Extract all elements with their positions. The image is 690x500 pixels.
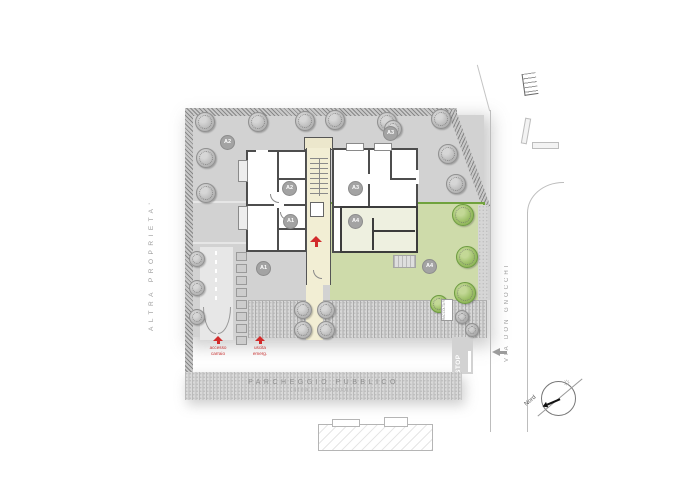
storage-square [236, 300, 247, 309]
wall [368, 150, 370, 174]
tree-icon [431, 109, 451, 129]
unit-a4-plan [340, 206, 418, 253]
tree-icon [295, 111, 315, 131]
lane-marking [532, 142, 559, 149]
adjacent-property-label: ALTRA PROPRIETA' [148, 155, 155, 331]
lane-marking [521, 118, 531, 145]
existing-building-notch [332, 419, 360, 427]
bush-icon [465, 323, 479, 337]
emergency-exit: uscita emerg. [247, 336, 273, 356]
ramp-arc-left [203, 307, 216, 334]
waste-collection-label: RACCOLTA RIFIUTI [442, 300, 447, 320]
terrace-steps [393, 255, 416, 268]
tree-icon [294, 301, 312, 319]
sidewalk-right [478, 205, 488, 300]
door-arc [270, 194, 279, 203]
garden-label-a2: A2 [220, 135, 235, 150]
public-parking-title: PARCHEGGIO PUBBLICO [248, 379, 399, 386]
storage-square [236, 324, 247, 333]
existing-building-outline [318, 424, 433, 451]
emergency-exit-arrow-stem [259, 341, 262, 344]
vehicle-access: accesso carraio [203, 336, 233, 356]
public-parking-subtitle: (area in cessione) [290, 387, 357, 393]
storage-square [236, 288, 247, 297]
tree-icon [195, 112, 215, 132]
storage-square [236, 264, 247, 273]
entrance-arrow-icon [310, 236, 322, 248]
garden-label-a4: A4 [422, 259, 437, 274]
tree-icon [452, 204, 474, 226]
driveway-center-line [215, 251, 217, 303]
vehicle-access-label: accesso carraio [203, 345, 233, 356]
balcony [346, 143, 364, 151]
building-left-wing [246, 150, 307, 252]
wall [374, 230, 415, 232]
window [416, 170, 419, 184]
driveway [200, 247, 233, 340]
tree-icon [189, 280, 205, 296]
wall [284, 204, 305, 206]
wall [248, 204, 274, 206]
tree-icon [438, 144, 458, 164]
stair-core [306, 148, 331, 285]
steps-symbol [522, 72, 539, 96]
stop-road-marking: STOP [455, 349, 462, 374]
elevator [310, 202, 324, 217]
wall [279, 178, 305, 180]
wall [390, 178, 416, 180]
tree-icon [317, 301, 335, 319]
boundary-top [185, 108, 457, 116]
street-left-edge-slant [477, 65, 490, 112]
unit-label-a1: A1 [283, 214, 298, 229]
tree-icon [189, 251, 205, 267]
tree-icon [325, 110, 345, 130]
storage-square [236, 312, 247, 321]
emergency-exit-label: uscita emerg. [247, 345, 273, 356]
storage-square [236, 252, 247, 261]
tree-icon [189, 309, 205, 325]
staircase-center-line [319, 158, 320, 196]
unit-label-a2: A2 [282, 181, 297, 196]
tree-icon [294, 321, 312, 339]
site-plan-canvas: STOP PARCHEGGIO PUBBLICO (area in cessio… [0, 0, 690, 500]
bush-icon [455, 310, 469, 324]
north-label: Nord [524, 395, 538, 408]
unit-label-a3: A3 [348, 181, 363, 196]
tree-icon [456, 246, 478, 268]
garden-divider [193, 242, 246, 244]
window [256, 150, 268, 153]
wall [390, 150, 392, 178]
balcony [238, 206, 248, 230]
stop-line [468, 351, 471, 372]
storage-squares [236, 252, 247, 348]
unit-label-a4: A4 [348, 214, 363, 229]
garden-label-a1: A1 [256, 261, 271, 276]
tree-icon [196, 183, 216, 203]
balcony [374, 143, 392, 151]
waste-collection-box: RACCOLTA RIFIUTI [441, 299, 453, 321]
existing-building-notch [384, 417, 408, 427]
tree-icon [196, 148, 216, 168]
wall [372, 218, 374, 250]
door-arc [313, 270, 322, 279]
balcony [238, 160, 248, 182]
street-name-label: VIA DON GNOCCHI [504, 222, 510, 362]
tree-icon [454, 282, 476, 304]
tree-icon [317, 321, 335, 339]
ramp-arc-right [218, 307, 231, 334]
public-parking-band: PARCHEGGIO PUBBLICO (area in cessione) [185, 372, 462, 400]
vehicle-access-arrow-stem [217, 341, 220, 344]
tree-icon [248, 112, 268, 132]
tree-icon [446, 174, 466, 194]
compass: ☼ Nord [522, 360, 592, 422]
street-left-edge [490, 110, 491, 432]
street-corner-arc [527, 182, 564, 214]
wall [368, 184, 370, 206]
storage-square [236, 276, 247, 285]
wall [277, 152, 279, 192]
garden-label-a3: A3 [383, 126, 398, 141]
storage-square [236, 336, 247, 345]
sun-icon: ☼ [562, 377, 571, 388]
